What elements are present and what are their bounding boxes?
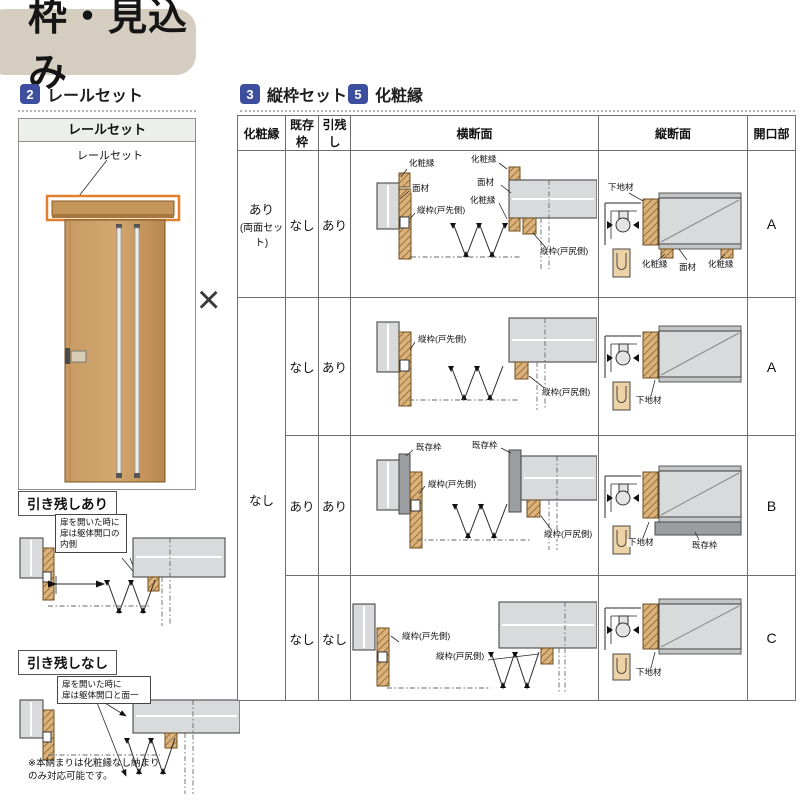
section-number-badge: 2	[20, 84, 40, 104]
table-row: あり (両面セット) なし あり	[238, 151, 796, 298]
diagram-label: 化粧縁	[707, 260, 735, 270]
col-header: 既存枠	[286, 116, 319, 151]
cell-kison: なし	[286, 298, 319, 436]
footnote: ※本納まりは化粧縁なし納まり のみ対応可能です。	[28, 758, 159, 784]
dotted-divider	[240, 110, 795, 112]
diagram-label: 縦枠(戸尻側)	[435, 652, 485, 662]
diagram-label: 縦枠(戸尻側)	[543, 530, 593, 540]
cell-opening: A	[748, 298, 796, 436]
col-header: 開口部	[748, 116, 796, 151]
diagram-label: 面材	[476, 178, 495, 188]
vertical-section-row4: 下地材	[599, 576, 748, 701]
table-row: なし なし あり 縦枠(戸先側) 縦枠(戸尻側)	[238, 298, 796, 436]
section-head-rail: 2 レールセット	[20, 82, 143, 106]
cross-section-svg	[351, 153, 597, 296]
rail-set-callout: レールセット	[77, 147, 143, 163]
door-illustration	[19, 142, 195, 490]
section-head-kesho: 5 化粧縁	[348, 82, 423, 106]
door-handle	[65, 348, 70, 364]
cell-opening: B	[748, 436, 796, 576]
diagram-label: 縦枠(戸先側)	[416, 206, 466, 216]
section-head-tatewaku: 3 縦枠セット	[240, 82, 347, 106]
cell-kesho: あり (両面セット)	[238, 151, 286, 298]
cross-section-row2: 縦枠(戸先側) 縦枠(戸尻側)	[351, 298, 599, 436]
cell-opening: A	[748, 151, 796, 298]
diagram-label: 下地材	[635, 396, 663, 406]
diagram-label: 面材	[411, 184, 430, 194]
diagram-label: 縦枠(戸先側)	[417, 335, 467, 345]
vertical-section-row2: 下地材	[599, 298, 748, 436]
vertical-section-svg	[599, 578, 746, 699]
spec-table: 化粧縁 既存枠 引残し 横断面 縦断面 開口部 あり (両面セット) なし あり	[237, 115, 796, 701]
cell-hiki: あり	[319, 298, 351, 436]
section-number-badge: 5	[348, 84, 368, 104]
diagram-label: 化粧縁	[641, 260, 669, 270]
page-title: 枠・見込み	[0, 9, 196, 75]
vertical-section-row1: 下地材 化粧縁 面材 化粧縁	[599, 151, 748, 298]
cell-opening: C	[748, 576, 796, 701]
diagram-label: 縦枠(戸先側)	[401, 632, 451, 642]
diagram-label: 縦枠(戸先側)	[427, 480, 477, 490]
diagram-label: 化粧縁	[408, 159, 436, 169]
pull-remaining-yes-title: 引き残しあり	[18, 491, 117, 516]
col-header: 横断面	[351, 116, 599, 151]
cross-section-row4: 縦枠(戸先側) 縦枠(戸尻側)	[351, 576, 599, 701]
cell-hiki: あり	[319, 151, 351, 298]
cell-hiki: あり	[319, 436, 351, 576]
table-row: なし なし 縦枠(戸先側) 縦枠(戸尻側)	[238, 576, 796, 701]
table-header-row: 化粧縁 既存枠 引残し 横断面 縦断面 開口部	[238, 116, 796, 151]
cell-kison: なし	[286, 151, 319, 298]
pull-remaining-no-diagram: 扉を開いた時に 扉は躯体開口と面一 ※本納まりは化粧縁なし納まり のみ対応可能で…	[10, 674, 240, 800]
cell-kison: なし	[286, 576, 319, 701]
section-label: レールセット	[47, 82, 143, 106]
cross-section-row1: 化粧縁 面材 縦枠(戸先側) 化粧縁 面材 化粧縁 縦枠(戸尻側)	[351, 151, 599, 298]
diagram-label: 既存枠	[471, 441, 499, 451]
section-label: 縦枠セット	[267, 82, 347, 106]
cell-kison: あり	[286, 436, 319, 576]
page-root: 枠・見込み 2 レールセット 3 縦枠セット 5 化粧縁 レールセット レールセ…	[0, 0, 800, 800]
door-rail-strip	[117, 228, 121, 474]
section-number-badge: 3	[240, 84, 260, 104]
diagram-label: 既存枠	[415, 443, 443, 453]
cross-section-svg	[351, 300, 597, 434]
rail-set-panel-header: レールセット	[19, 119, 195, 142]
section-label: 化粧縁	[375, 82, 423, 106]
vertical-section-svg	[599, 153, 746, 296]
speech-bubble: 扉を開いた時に 扉は躯体開口の 内側	[55, 514, 127, 553]
diagram-label: 縦枠(戸尻側)	[541, 388, 591, 398]
cell-hiki: なし	[319, 576, 351, 701]
diagram-label: 化粧縁	[470, 155, 498, 165]
door-rail-strip	[135, 228, 139, 474]
cross-section-svg	[351, 438, 597, 574]
table-row: あり あり 既存枠 既存枠	[238, 436, 796, 576]
diagram-label: 縦枠(戸尻側)	[539, 247, 589, 257]
diagram-label: 面材	[678, 263, 697, 273]
vertical-section-svg	[599, 300, 746, 434]
vertical-section-svg	[599, 438, 746, 574]
diagram-label: 既存枠	[691, 541, 719, 551]
pull-remaining-yes-diagram: 扉を開いた時に 扉は躯体開口の 内側	[10, 514, 230, 652]
cell-kesho: なし	[238, 298, 286, 701]
rail-set-panel: レールセット レールセット	[18, 118, 196, 490]
col-header: 縦断面	[599, 116, 748, 151]
col-header: 引残し	[319, 116, 351, 151]
diagram-label: 下地材	[627, 538, 655, 548]
diagram-label: 下地材	[635, 668, 663, 678]
col-header: 化粧縁	[238, 116, 286, 151]
vertical-section-row3: 下地材 既存枠	[599, 436, 748, 576]
pull-remaining-no-title: 引き残しなし	[18, 650, 117, 675]
speech-bubble: 扉を開いた時に 扉は躯体開口と面一	[57, 676, 151, 704]
dotted-divider	[18, 110, 196, 112]
diagram-label: 下地材	[607, 183, 635, 193]
diagram-label: 化粧縁	[469, 196, 497, 206]
cross-section-svg	[351, 578, 597, 699]
multiply-icon: ×	[197, 278, 220, 323]
cross-section-row3: 既存枠 既存枠 縦枠(戸先側) 縦枠(戸尻側)	[351, 436, 599, 576]
